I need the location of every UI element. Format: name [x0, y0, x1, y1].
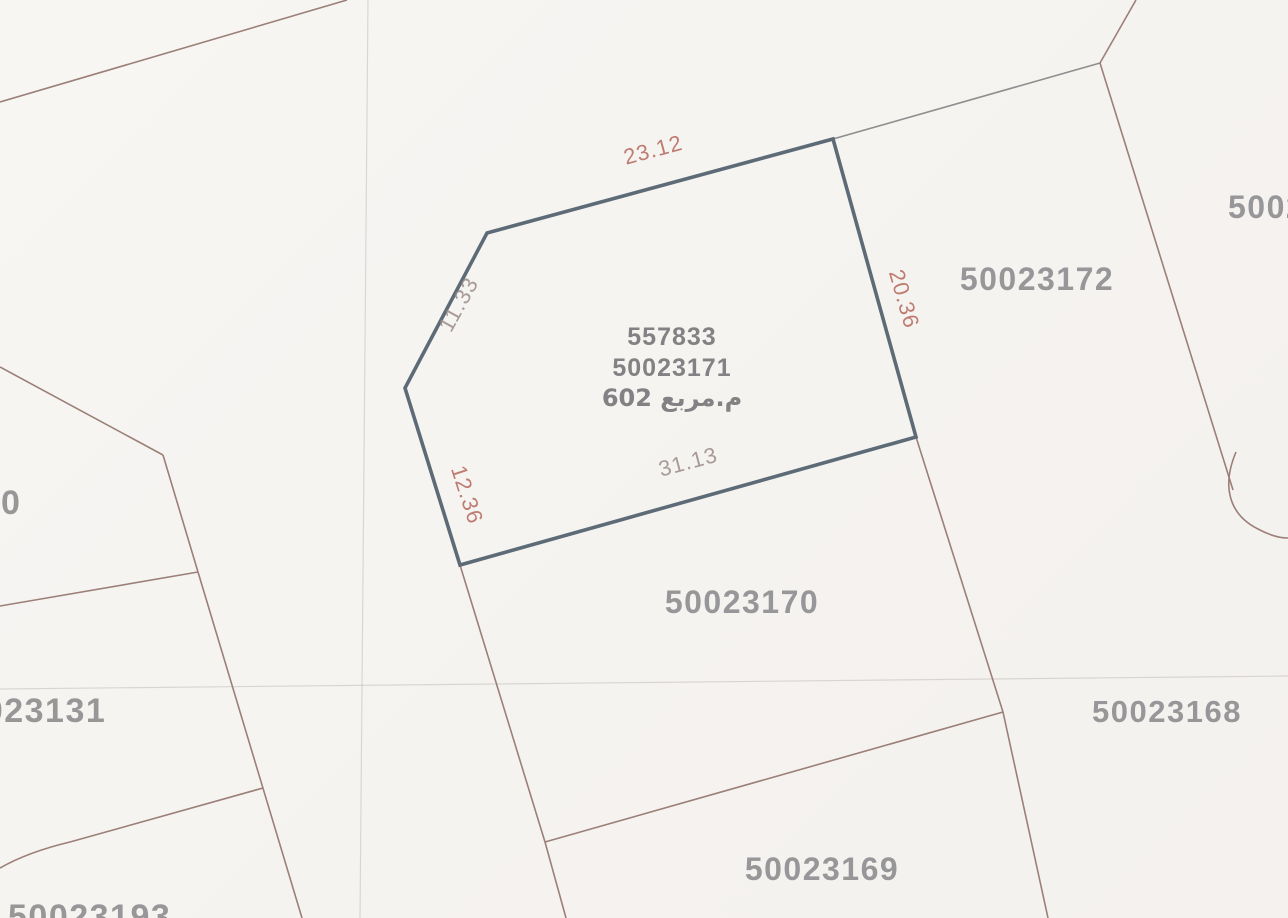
dimension-label-bottom: 31.13 — [656, 442, 720, 482]
boundary-line-left-of-50023169 — [545, 842, 566, 918]
dimension-label-upper-left: 11.33 — [433, 273, 483, 336]
scan-fold-line-horizontal — [0, 676, 1288, 689]
dimension-label-right: 20.36 — [884, 267, 925, 332]
boundary-line-top-right-entry — [1100, 0, 1136, 63]
parcel-label-50023168: 50023168 — [1092, 694, 1242, 729]
boundary-line-top-of-50023131 — [0, 572, 198, 606]
parcel-label-50023169: 50023169 — [745, 851, 899, 887]
dimension-label-lower-left: 12.36 — [446, 462, 488, 527]
boundary-line-left-of-50023131 — [198, 572, 302, 918]
boundary-line-top-of-50023169 — [545, 712, 1003, 842]
cadastral-map-canvas: 23.12 11.33 12.36 31.13 20.36 557833 500… — [0, 0, 1288, 918]
parcel-label-50023193-partial: 50023193 — [8, 898, 171, 918]
boundary-line-top-left — [0, 0, 347, 102]
road-curve-arc — [1229, 452, 1288, 538]
dimension-label-top: 23.12 — [621, 130, 685, 170]
boundary-line-left-parcel-side — [163, 455, 198, 572]
parcel-label-50023170: 50023170 — [665, 584, 819, 620]
boundary-line-50023168-50023169-divider — [1003, 712, 1048, 918]
parcel-label-50023131-partial: 50023131 — [0, 692, 106, 730]
boundary-line-top-edge-extension — [833, 63, 1100, 139]
selected-parcel-plot-number: 557833 — [627, 323, 716, 351]
boundary-line-right-of-50023170 — [916, 437, 1003, 712]
selected-parcel-number: 50023171 — [612, 354, 731, 382]
scan-fold-line-vertical — [360, 0, 368, 918]
boundary-line-left-parcel-chamfer — [0, 367, 163, 455]
boundary-line-right-parcel-divider — [1100, 63, 1233, 490]
parcel-label-50023172: 50023172 — [960, 261, 1114, 297]
boundary-line-left-of-50023170 — [460, 565, 545, 842]
selected-parcel-area-label: 602 م.مربع — [602, 384, 742, 412]
boundary-line-top-of-50023193 — [0, 788, 263, 868]
parcel-label-far-right-partial: 5002 — [1228, 189, 1288, 225]
parcel-label-left-edge-partial: 0 — [1, 484, 21, 522]
cadastral-map: 23.12 11.33 12.36 31.13 20.36 557833 500… — [0, 0, 1288, 918]
